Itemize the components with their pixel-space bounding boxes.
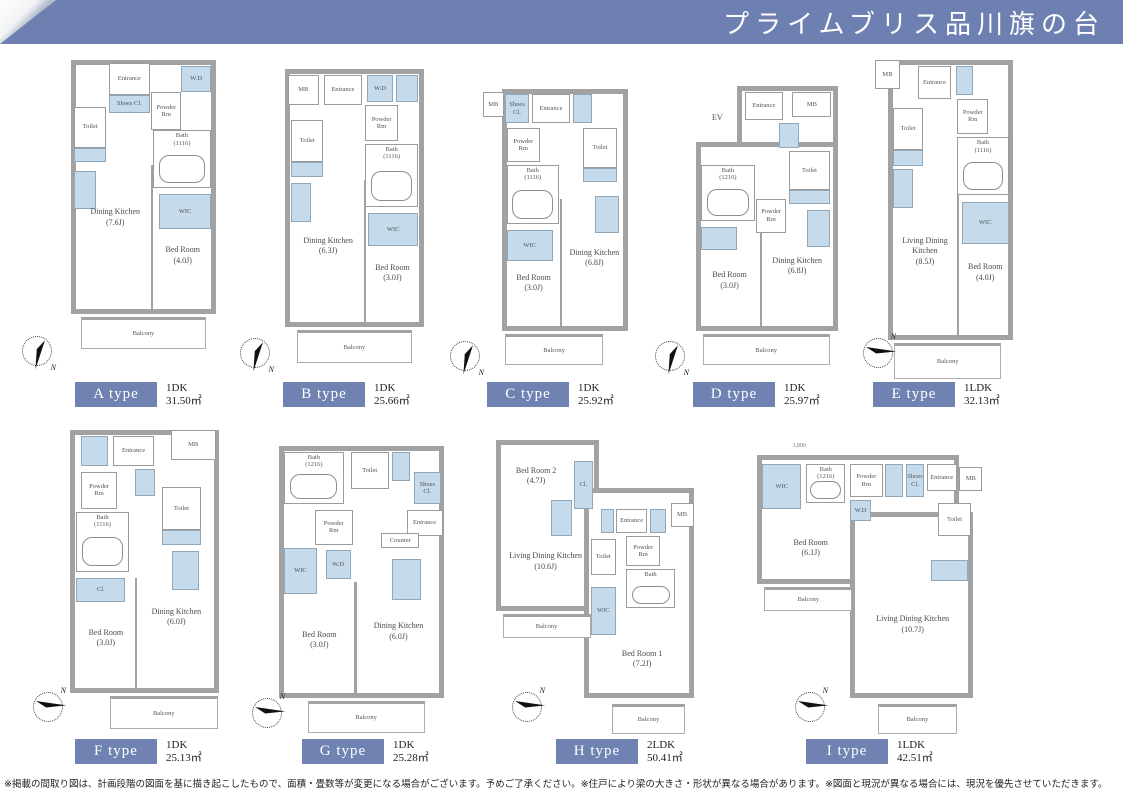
room-dining-kitchen-6-3j: Dining Kitchen (6.3J) [294,225,362,267]
room-label: Entrance [539,105,562,112]
room-fixture [583,168,618,182]
type-badge-d: D type [693,382,775,407]
plan-card-a: EntranceShoes Cl.W.DPowder RmToiletBath … [65,60,222,352]
room-label: Toilet [901,125,916,132]
room-bed-room-3-0j: Bed Room (3.0J) [367,255,418,291]
room-fixture [291,162,324,177]
room-shoes-cl: Shoes Cl. [414,472,441,504]
layout-type: 1DK [166,739,202,752]
room-label: Shoes Cl. [907,473,923,488]
balcony-label: Balcony [133,330,155,337]
room-label: Entrance [752,102,775,109]
room-fixture [551,500,572,536]
room-label: WIC [523,242,536,249]
room-label: Bath (1116) [94,513,111,529]
balcony: Balcony [764,587,852,611]
wall-divider [135,578,137,693]
room-label: Toilet [592,144,607,151]
room-fixture [135,469,155,496]
room-bath-1116: Bath (1116) [957,137,1008,195]
balcony: Balcony [703,334,830,365]
wall-divider [364,180,366,327]
type-badge-label: B type [301,386,347,403]
room-toilet: Toilet [351,452,389,490]
compass-icon: N [33,692,63,722]
room-label: EV [712,113,723,123]
room-label: WIC [294,567,307,574]
room-powder-rm: Powder Rm [850,464,882,497]
floorplan-h: Bed Room 2 (4.7J)Cl.Living Dining Kitche… [492,440,702,740]
room-label: Living Dining Kitchen (10.7J) [876,614,949,635]
wall-divider [151,165,153,314]
plan-label-row-d: D type1DK25.97㎡ [693,382,820,408]
room-fixture [650,509,667,533]
room-fixture [392,559,421,600]
room-fixture [885,464,904,497]
balcony: Balcony [110,696,218,729]
compass-north-label: N [684,368,689,377]
room-label: Cl. [97,586,105,593]
room-label: Entrance [923,79,946,86]
room-toilet: Toilet [162,487,201,529]
room-dining-kitchen-6-8j: Dining Kitchen (6.8J) [763,247,831,286]
title-bar: プライムブリス品川旗の台 [0,0,1123,44]
room-entrance: Entrance [324,75,363,105]
room-bed-room-3-0j: Bed Room (3.0J) [78,620,133,656]
layout-type: 1LDK [964,382,1000,395]
room-wic: WIC [368,213,418,246]
room-bath-1216: Bath (1216) [806,464,845,503]
room-toilet: Toilet [789,151,830,190]
room-wic: WIC [507,230,553,261]
room-cl: Cl. [574,461,593,509]
room-label: Entrance [118,75,141,82]
room-label: Shoes Cl. [117,100,142,107]
plan-card-f: EntranceMBPowder RmToiletBath (1116)Cl.D… [63,430,231,732]
balcony-label: Balcony [798,596,820,603]
room-w-d: W.D [326,550,351,579]
room-label: Bed Room 2 (4.7J) [516,466,556,487]
room-bed-room-6-1j: Bed Room (6.1J) [776,530,846,566]
bathtub-icon [810,481,841,500]
room-fixture [931,560,968,581]
room-dining-kitchen-6-8j: Dining Kitchen (6.8J) [562,238,627,277]
room-powder-rm: Powder Rm [81,472,116,508]
type-info-d: 1DK25.97㎡ [784,382,820,408]
room-label: Entrance [413,519,436,526]
room-living-dining-kitchen-10-6j: Living Dining Kitchen (10.6J) [500,542,590,581]
room-powder-rm: Powder Rm [756,199,785,233]
room-label: Counter [390,537,411,544]
plan-label-row-g: G type1DK25.28㎡ [302,739,429,765]
compass-icon: N [795,692,825,722]
room-label: Toilet [802,167,817,174]
room-fixture [956,66,974,95]
type-badge-label: F type [94,743,138,760]
balcony-label: Balcony [543,347,565,354]
room-label: Bath (1116) [383,145,400,161]
room-label: W.D [374,85,386,92]
room-bath-1116: Bath (1116) [153,130,211,188]
room-mb: MB [483,92,504,117]
floorplan-g: Bath (1216)ToiletShoes Cl.EntrancePowder… [277,446,457,736]
room-label: Toilet [596,553,611,560]
property-title: プライムブリス品川旗の台 [723,4,1105,41]
room-label: MB [298,86,308,93]
type-info-g: 1DK25.28㎡ [393,739,429,765]
room-label: 3,800 [792,443,806,449]
plan-card-c: MBShoes Cl.EntrancePowder RmToiletBath (… [483,86,641,368]
room-bath: Bath [626,569,674,608]
room-entrance: Entrance [109,63,150,95]
room-wic: WIC [762,464,801,509]
room-living-dining-kitchen-8-5j: Living Dining Kitchen (8.5J) [894,221,956,282]
room-entrance: Entrance [745,92,782,120]
plan-card-e: MBEntrancePowder RmToiletBath (1116)WICL… [875,60,1022,382]
balcony-label: Balcony [536,623,558,630]
room-fixture [789,190,830,204]
room-label: Dining Kitchen (6.0J) [374,621,424,642]
room-label: Cl. [579,481,587,488]
room-label: Powder Rm [156,104,176,119]
bathtub-icon [159,155,205,183]
floorplan-d: EVEntranceMBToiletBath (1216)Powder RmDi… [688,86,851,368]
room-wic: WIC [284,548,316,594]
compass-north-label: N [479,368,484,377]
balcony-label: Balcony [907,716,929,723]
room-wic: WIC [159,194,211,229]
bathtub-icon [963,162,1004,190]
compass-icon: N [863,338,893,368]
room-label: Bed Room (3.0J) [516,273,550,294]
layout-type: 1DK [374,382,410,395]
room-label: Bed Room (3.0J) [89,628,123,649]
type-badge-label: G type [320,743,366,760]
room-cl: Cl. [76,578,125,602]
type-info-f: 1DK25.13㎡ [166,739,202,765]
floorplan-b: MBEntranceW.DPowder RmToiletBath (1116)W… [277,66,432,366]
type-badge-label: C type [505,386,551,403]
room-fixture [573,94,592,122]
plan-label-row-b: B type1DK25.66㎡ [283,382,410,408]
room-fixture [172,551,199,590]
layout-type: 1LDK [897,739,933,752]
room-label: Entrance [620,517,643,524]
type-badge-i: I type [806,739,888,764]
type-info-c: 1DK25.92㎡ [578,382,614,408]
room-bath-1116: Bath (1116) [507,165,559,224]
room-fixture [162,530,201,545]
type-badge-label: A type [93,386,139,403]
room-bed-room-2-4-7j: Bed Room 2 (4.7J) [503,458,570,494]
room-fixture [701,227,737,250]
room-powder-rm: Powder Rm [507,128,540,162]
room-label: Toilet [947,516,962,523]
room-toilet: Toilet [291,120,324,162]
compass-icon: N [252,698,282,728]
room-wic: WIC [591,587,616,635]
room-toilet: Toilet [583,128,618,167]
type-badge-h: H type [556,739,638,764]
room-label: Dining Kitchen (6.3J) [303,236,353,257]
room-bath-1216: Bath (1216) [284,452,343,504]
type-badge-b: B type [283,382,365,407]
floor-area: 25.66㎡ [374,395,410,408]
bathtub-icon [82,537,123,566]
room-label: MB [966,475,976,482]
room-dining-kitchen-6-0j: Dining Kitchen (6.0J) [360,611,437,652]
balcony-label: Balcony [937,358,959,365]
type-info-a: 1DK31.50㎡ [166,382,202,408]
balcony: Balcony [503,614,591,638]
room-fixture [74,148,105,163]
room-label: Bed Room (3.0J) [302,630,336,651]
room-mb: MB [288,75,319,105]
floor-area: 32.13㎡ [964,395,1000,408]
room-dining-kitchen-6-0j: Dining Kitchen (6.0J) [140,596,212,638]
bathtub-icon [707,189,749,216]
compass-icon: N [512,692,542,722]
room-toilet: Toilet [938,503,970,536]
room-entrance: Entrance [407,510,443,536]
floorplan-i: 3,800WICBath (1216)Powder RmShoes Cl.Ent… [755,440,987,740]
room-label: Entrance [930,474,953,481]
room-toilet: Toilet [74,107,105,148]
balcony: Balcony [894,343,1001,378]
room-label: Shoes Cl. [420,481,436,496]
room-mb: MB [875,60,900,89]
room-shoes-cl: Shoes Cl. [505,94,529,122]
room-shoes-cl: Shoes Cl. [906,464,925,497]
room-label: Powder Rm [761,208,781,223]
type-badge-label: E type [892,386,937,403]
room-label: Toilet [83,123,98,130]
floorplan-a: EntranceShoes Cl.W.DPowder RmToiletBath … [65,60,222,352]
room-label: Powder Rm [372,116,392,131]
room-label: Dining Kitchen (7.6J) [90,207,140,228]
room-entrance: Entrance [532,94,570,122]
compass-icon: N [22,336,52,366]
room-fixture [807,210,830,247]
type-badge-label: H type [574,743,620,760]
balcony-label: Balcony [755,347,777,354]
floorplan-c: MBShoes Cl.EntrancePowder RmToiletBath (… [483,86,641,368]
room-3-800: 3,800 [783,440,815,452]
room-bath-1216: Bath (1216) [701,165,755,221]
room-entrance: Entrance [927,464,957,491]
balcony: Balcony [81,317,207,349]
room-fixture [893,169,914,208]
room-label: Bed Room (4.0J) [968,262,1002,283]
room-powder-rm: Powder Rm [365,105,398,141]
bathtub-icon [632,586,670,605]
balcony-label: Balcony [153,710,175,717]
compass-north-label: N [269,365,274,374]
room-label: Powder Rm [513,138,533,153]
room-fixture [291,183,311,222]
room-label: Bath (1116) [174,131,191,147]
type-badge-a: A type [75,382,157,407]
room-label: Dining Kitchen (6.8J) [570,248,620,269]
balcony: Balcony [612,704,686,734]
room-label: MB [882,71,892,78]
room-bed-room-3-0j: Bed Room (3.0J) [508,266,559,300]
room-ev: EV [708,109,728,129]
type-info-i: 1LDK42.51㎡ [897,739,933,765]
room-entrance: Entrance [616,509,648,533]
room-label: Dining Kitchen (6.0J) [152,607,202,628]
room-label: Living Dining Kitchen (10.6J) [509,551,582,572]
room-toilet: Toilet [893,108,924,150]
room-label: Entrance [122,447,145,454]
room-mb: MB [671,503,694,527]
type-badge-g: G type [302,739,384,764]
bathtub-icon [512,190,553,219]
room-label: Bath [644,570,656,578]
plan-card-d: EVEntranceMBToiletBath (1216)Powder RmDi… [688,86,851,368]
room-fixture [595,196,619,233]
type-badge-label: I type [827,743,868,760]
compass-north-label: N [891,332,896,341]
room-entrance: Entrance [113,436,153,466]
room-label: Powder Rm [89,483,109,498]
layout-type: 1DK [393,739,429,752]
room-label: Bath (1216) [817,465,834,481]
room-toilet: Toilet [591,539,616,575]
room-w-d: W.D [181,66,211,92]
type-info-b: 1DK25.66㎡ [374,382,410,408]
type-badge-e: E type [873,382,955,407]
wall-divider [957,195,959,340]
floor-area: 25.92㎡ [578,395,614,408]
room-label: WIC [775,483,788,490]
room-bath-1116: Bath (1116) [76,512,128,572]
room-bath-1116: Bath (1116) [365,144,418,207]
room-wic: WIC [962,202,1009,244]
room-label: MB [807,101,817,108]
room-counter: Counter [381,533,419,548]
plan-card-h: Bed Room 2 (4.7J)Cl.Living Dining Kitche… [492,440,702,740]
compass-north-label: N [280,692,285,701]
room-label: Bed Room (6.1J) [793,538,827,559]
compass-north-label: N [540,686,545,695]
room-bed-room-3-0j: Bed Room (3.0J) [288,623,351,658]
room-mb: MB [171,430,216,460]
room-powder-rm: Powder Rm [626,536,660,566]
floorplan-sheet: プライムブリス品川旗の台 EntranceShoes Cl.W.DPowder … [0,0,1123,793]
room-fixture [779,123,799,148]
balcony: Balcony [297,330,412,363]
room-label: Bath (1116) [524,166,541,182]
room-label: MB [188,441,198,448]
room-label: Bed Room 1 (7.2J) [622,649,662,670]
room-label: MB [677,511,687,518]
room-dining-kitchen-7-6j: Dining Kitchen (7.6J) [81,197,150,238]
balcony-label: Balcony [638,716,660,723]
layout-type: 2LDK [647,739,683,752]
room-powder-rm: Powder Rm [151,92,181,130]
room-fixture [601,509,614,533]
room-label: Toilet [300,137,315,144]
room-label: W.D [332,561,344,568]
compass-north-label: N [823,686,828,695]
room-w-d: W.D [850,500,871,521]
floor-area: 50.41㎡ [647,752,683,765]
room-label: MB [488,101,498,108]
room-living-dining-kitchen-10-7j: Living Dining Kitchen (10.7J) [859,605,966,644]
room-bed-room-3-0j: Bed Room (3.0J) [703,264,757,298]
room-label: WIC [979,219,992,226]
room-label: Powder Rm [963,109,983,124]
layout-type: 1DK [784,382,820,395]
room-mb: MB [792,92,831,117]
room-label: Bath (1116) [975,138,992,154]
layout-type: 1DK [578,382,614,395]
floor-area: 25.28㎡ [393,752,429,765]
type-info-e: 1LDK32.13㎡ [964,382,1000,408]
wall-divider [354,582,356,698]
bathtub-icon [290,474,337,499]
type-badge-f: F type [75,739,157,764]
room-fixture [396,75,418,102]
compass-icon: N [450,341,480,371]
plan-label-row-f: F type1DK25.13㎡ [75,739,202,765]
floor-area: 31.50㎡ [166,395,202,408]
room-label: W.D [190,75,202,82]
balcony: Balcony [308,701,425,733]
floor-area: 25.13㎡ [166,752,202,765]
balcony: Balcony [505,334,603,365]
room-label: Entrance [331,86,354,93]
plan-label-row-e: E type1LDK32.13㎡ [873,382,1000,408]
plan-card-i: 3,800WICBath (1216)Powder RmShoes Cl.Ent… [755,440,987,740]
room-w-d: W.D [367,75,393,102]
room-label: Living Dining Kitchen (8.5J) [902,236,948,267]
corner-fold-decoration [0,0,146,44]
room-label: Bed Room (4.0J) [166,245,200,266]
balcony-label: Balcony [344,344,366,351]
compass-north-label: N [61,686,66,695]
room-entrance: Entrance [918,66,952,98]
room-mb: MB [959,467,982,491]
room-label: WIC [597,607,610,614]
room-label: Toilet [362,467,377,474]
room-label: Dining Kitchen (6.8J) [772,256,822,277]
type-badge-c: C type [487,382,569,407]
room-label: WIC [387,226,400,233]
room-label: Powder Rm [856,473,876,488]
room-bed-room-1-7-2j: Bed Room 1 (7.2J) [610,641,675,677]
room-label: Powder Rm [324,520,344,535]
plan-card-g: Bath (1216)ToiletShoes Cl.EntrancePowder… [277,446,457,736]
type-badge-label: D type [711,386,757,403]
room-fixture [81,436,108,466]
plan-label-row-c: C type1DK25.92㎡ [487,382,614,408]
compass-icon: N [655,341,685,371]
room-bed-room-4-0j: Bed Room (4.0J) [154,238,211,273]
room-fixture [893,150,924,166]
floor-area: 42.51㎡ [897,752,933,765]
room-label: Shoes Cl. [509,101,525,116]
room-label: W.D [855,507,867,514]
room-bed-room-4-0j: Bed Room (4.0J) [962,253,1009,292]
compass-icon: N [240,338,270,368]
floorplan-f: EntranceMBPowder RmToiletBath (1116)Cl.D… [63,430,231,732]
bathtub-icon [371,171,413,202]
balcony: Balcony [878,704,957,734]
plan-card-b: MBEntranceW.DPowder RmToiletBath (1116)W… [277,66,432,366]
wall-divider [760,233,762,332]
